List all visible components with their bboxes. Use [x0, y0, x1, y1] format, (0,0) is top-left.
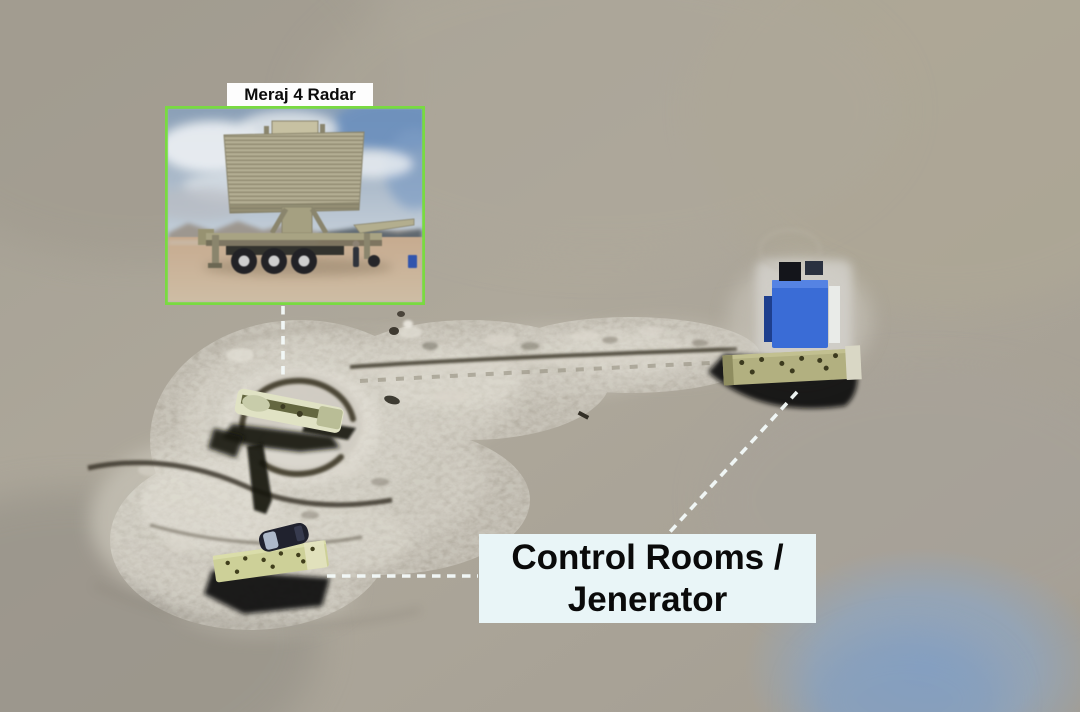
- radar-photo-scene: [168, 109, 422, 302]
- inset-caption: Meraj 4 Radar: [227, 83, 373, 106]
- radar-inset-photo: [165, 106, 425, 305]
- annotated-satellite-view: Meraj 4 Radar Control Rooms / Jenerator: [0, 0, 1080, 712]
- callout-line1: Control Rooms /: [511, 537, 783, 579]
- callout-line2: Jenerator: [568, 579, 728, 621]
- photo-radar-antenna: [224, 121, 364, 213]
- callout-label: Control Rooms / Jenerator: [479, 534, 816, 623]
- photo-person: [353, 241, 360, 268]
- photo-wheels: [231, 248, 317, 274]
- photo-blue-barrel: [408, 255, 417, 268]
